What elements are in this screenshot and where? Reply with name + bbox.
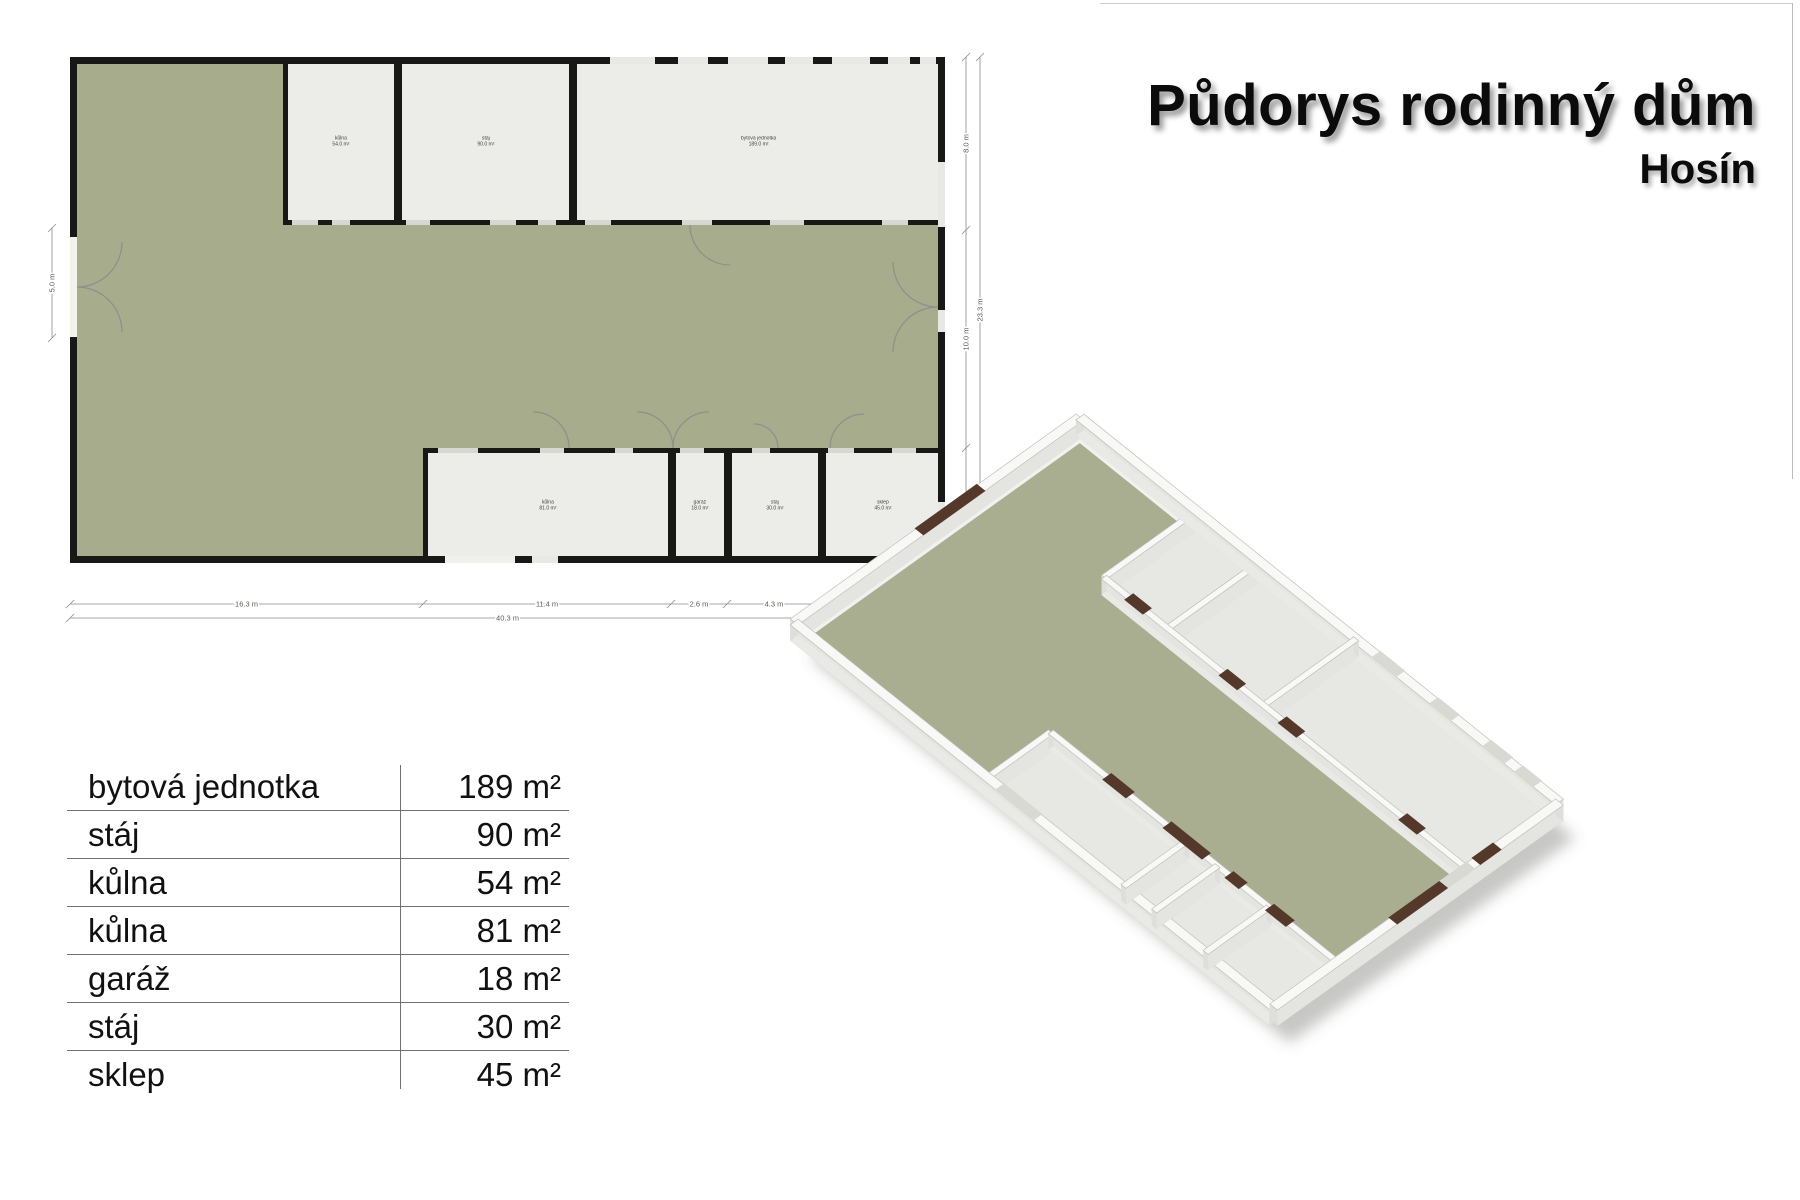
svg-text:10.0 m: 10.0 m <box>962 328 971 351</box>
room-area-value: 90 m² <box>381 816 567 854</box>
frame-top-line <box>1100 3 1793 4</box>
svg-text:5.0 m: 5.0 m <box>48 274 57 293</box>
page-title: Půdorys rodinný dům <box>1147 76 1756 137</box>
room-kulna-54: kůlna54.0 m² <box>283 57 399 225</box>
area-row: bytová jednotka189 m² <box>75 763 567 811</box>
window <box>920 57 936 64</box>
window <box>538 220 556 225</box>
window <box>585 220 611 225</box>
window <box>540 448 564 453</box>
room-name-label: bytová jednotka <box>75 768 381 806</box>
room-name-label: stáj <box>75 816 381 854</box>
room-staj-90: stáj90.0 m² <box>397 57 574 225</box>
area-row: stáj90 m² <box>75 811 567 859</box>
svg-text:11.4 m: 11.4 m <box>536 600 558 609</box>
window <box>882 220 908 225</box>
room-name-label: stáj <box>75 1008 381 1046</box>
room-garaz-18: garáž18.0 m² <box>671 448 729 563</box>
room-area-value: 30 m² <box>381 1008 567 1046</box>
svg-text:16.3 m: 16.3 m <box>235 600 258 609</box>
window <box>332 220 350 225</box>
window <box>532 556 558 563</box>
room-area-value: 54 m² <box>381 864 567 902</box>
window <box>832 57 870 64</box>
page-subtitle: Hosín <box>1147 145 1756 193</box>
window <box>406 220 430 225</box>
area-row: sklep45 m² <box>75 1051 567 1099</box>
room-byt-189: bytová jednotka189.0 m² <box>572 57 945 225</box>
window <box>938 310 945 332</box>
window <box>938 162 945 227</box>
room-area-value: 189 m² <box>381 768 567 806</box>
floorplan-page: kůlna54.0 m²stáj90.0 m²bytová jednotka18… <box>0 0 1800 1200</box>
window <box>682 220 712 225</box>
window <box>445 556 515 563</box>
window <box>292 220 318 225</box>
window <box>490 220 516 225</box>
room-area-value: 45 m² <box>381 1056 567 1094</box>
area-row: stáj30 m² <box>75 1003 567 1051</box>
room-kulna-81: kůlna81.0 m² <box>423 448 673 563</box>
window <box>438 448 478 453</box>
room-name-label: kůlna <box>75 912 381 950</box>
area-table: bytová jednotka189 m²stáj90 m²kůlna54 m²… <box>75 763 567 1099</box>
window <box>678 57 708 64</box>
window <box>770 220 804 225</box>
window <box>70 237 77 337</box>
svg-text:2.6 m: 2.6 m <box>690 600 709 609</box>
svg-text:8.0 m: 8.0 m <box>962 134 971 153</box>
window <box>610 57 655 64</box>
svg-text:40.3 m: 40.3 m <box>496 614 519 623</box>
area-row: kůlna81 m² <box>75 907 567 955</box>
window <box>680 448 704 453</box>
svg-text:23.3 m: 23.3 m <box>976 299 985 322</box>
window <box>888 57 910 64</box>
floorplan-3d-view <box>780 385 1580 1065</box>
room-area-value: 81 m² <box>381 912 567 950</box>
window <box>615 448 633 453</box>
area-row: kůlna54 m² <box>75 859 567 907</box>
room-name-label: kůlna <box>75 864 381 902</box>
window <box>752 448 770 453</box>
window <box>728 57 768 64</box>
window <box>785 57 813 64</box>
frame-right-line <box>1792 3 1793 479</box>
room-area-value: 18 m² <box>381 960 567 998</box>
room-name-label: sklep <box>75 1056 381 1094</box>
title-block: Půdorys rodinný dům Hosín <box>1147 76 1756 193</box>
area-row: garáž18 m² <box>75 955 567 1003</box>
room-name-label: garáž <box>75 960 381 998</box>
